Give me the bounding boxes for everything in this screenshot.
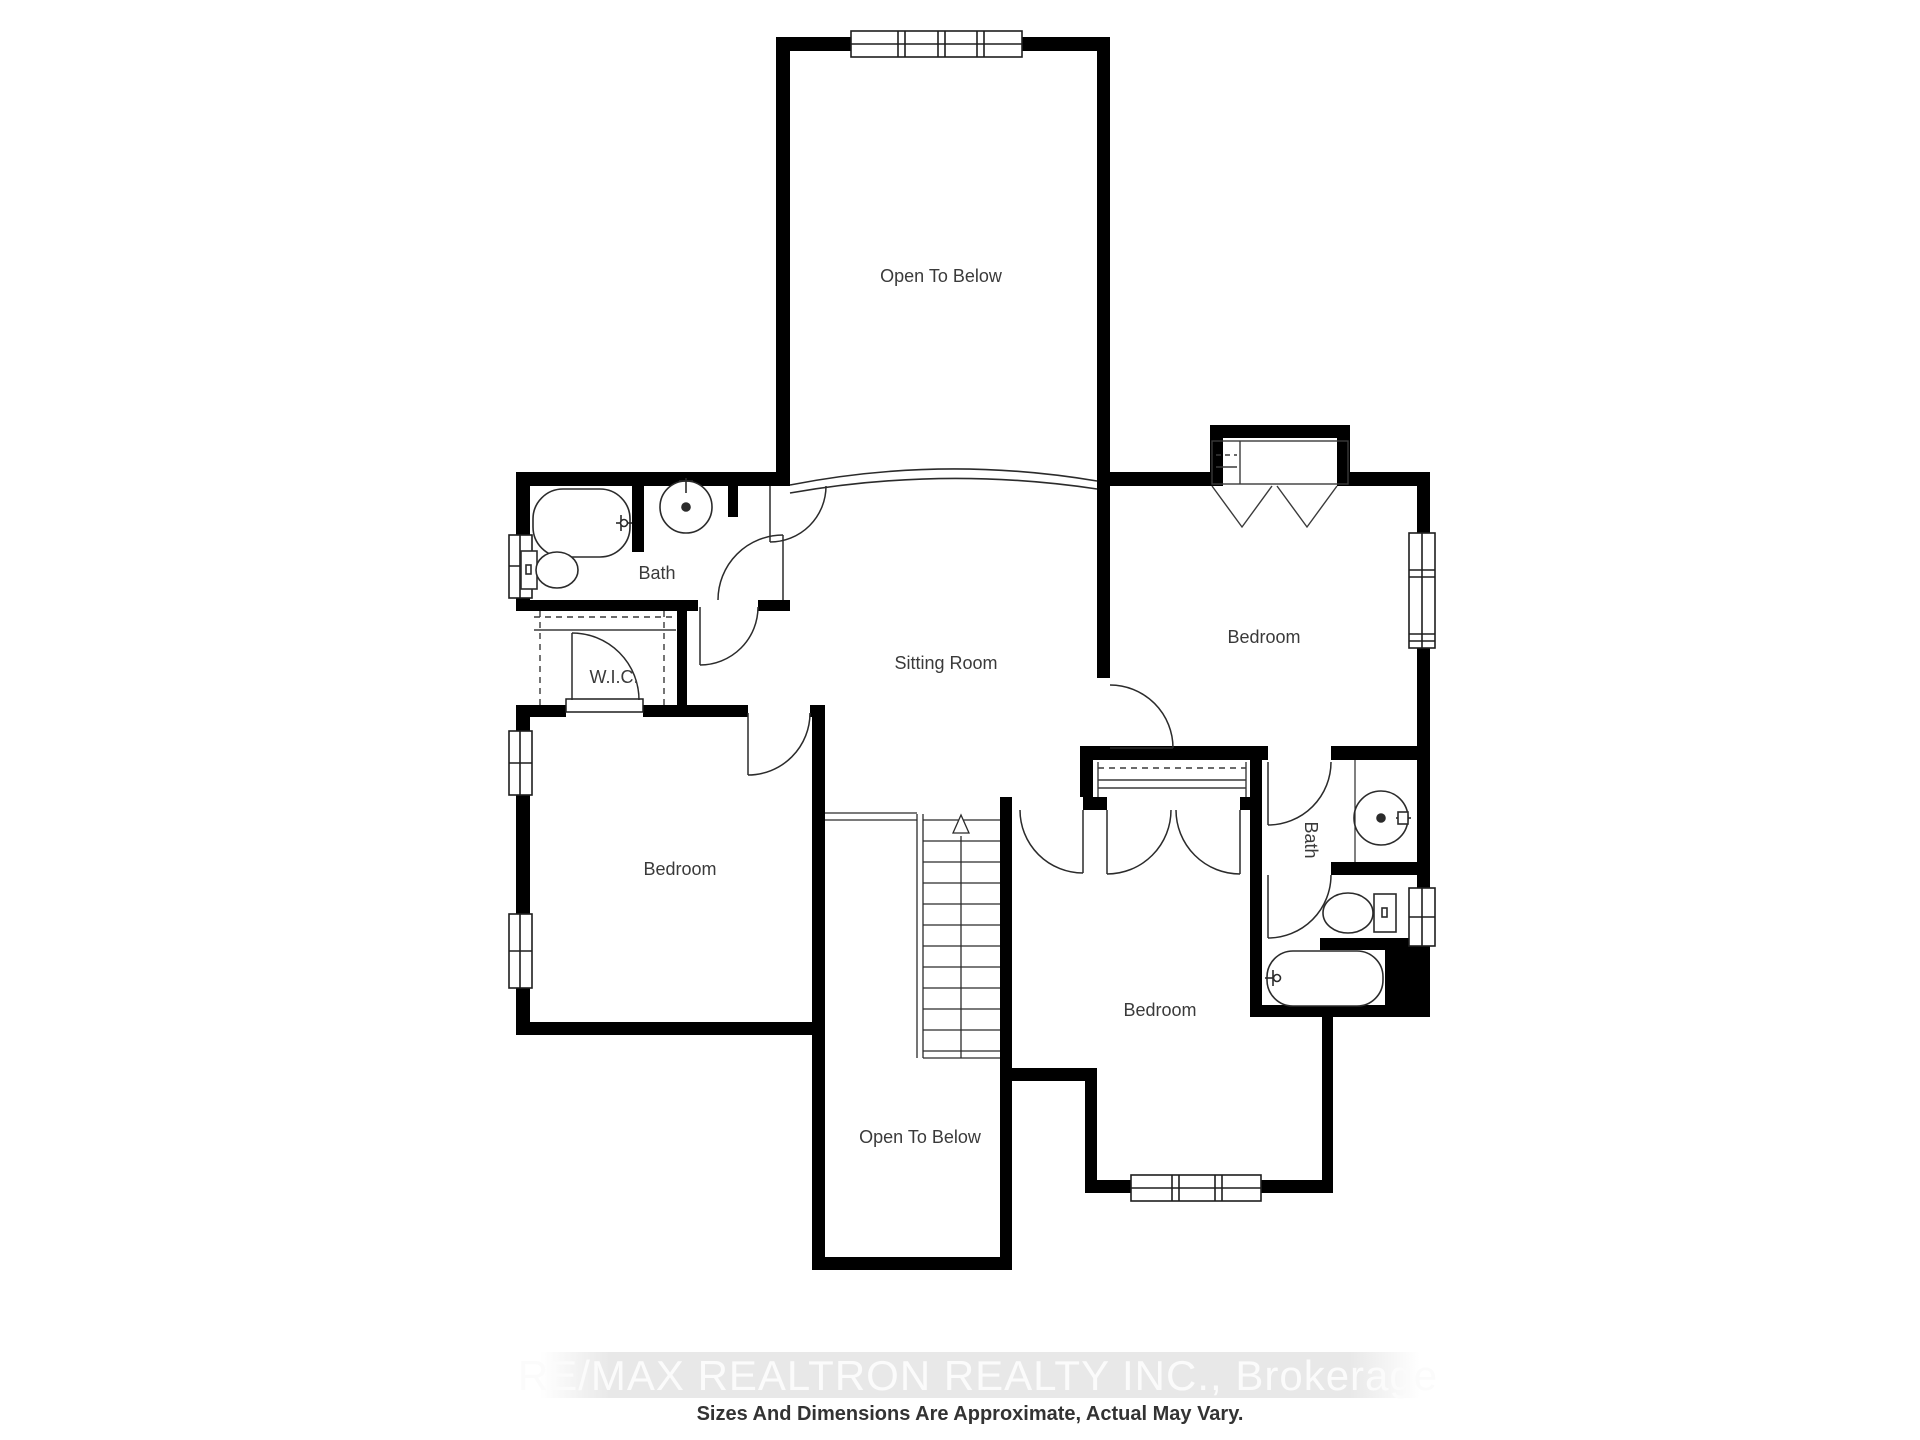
door-bedroom-lower: [1020, 810, 1083, 873]
bath-fixtures: [521, 478, 1411, 1006]
archway: [790, 469, 1097, 493]
room-label-open-to-below-upper: Open To Below: [880, 266, 1003, 286]
door-bath-lower: [1268, 762, 1331, 825]
watermark-text: RE/MAX REALTRON REALTY INC., Brokerage: [518, 1352, 1438, 1399]
toilet-lower: [1323, 893, 1396, 933]
room-label-bedroom-upper-right: Bedroom: [1227, 627, 1300, 647]
door-bedroom-left: [748, 713, 810, 775]
door-bedroom-upper-right: [1110, 685, 1173, 748]
closet-shelving: [534, 441, 1348, 797]
window-bedroom-left-1: [509, 731, 532, 795]
room-label-bath-lower: Bath: [1301, 821, 1321, 858]
window-wc: [1409, 888, 1435, 946]
closet-bedroom-lower: [1098, 762, 1246, 797]
stairs: [825, 813, 1000, 1058]
window-bedroom-lower: [1131, 1175, 1261, 1201]
footer: RE/MAX REALTRON REALTY INC., Brokerage S…: [518, 1352, 1438, 1425]
toilet-upper: [521, 551, 578, 589]
bifold-chevron-right: [1277, 486, 1337, 527]
door-wc: [1268, 875, 1331, 938]
disclaimer-text: Sizes And Dimensions Are Approximate, Ac…: [697, 1403, 1244, 1425]
floorplan-page: Open To Below Bath W.I.C. Sitting Room B…: [0, 0, 1920, 1440]
room-label-sitting-room: Sitting Room: [894, 653, 997, 673]
floorplan-drawing: Open To Below Bath W.I.C. Sitting Room B…: [0, 0, 1920, 1440]
window-bedroom-right: [1409, 533, 1435, 648]
window-top: [851, 31, 1022, 57]
bathtub-upper: [533, 489, 632, 557]
window-bedroom-left-2: [509, 914, 532, 988]
door-hall-vestibule: [718, 535, 783, 600]
door-vestibule: [700, 607, 758, 665]
bathtub-lower: [1265, 951, 1383, 1006]
double-closet-doors: [1107, 810, 1240, 874]
closet-bedroom-right: [1212, 441, 1348, 527]
bifold-chevron-left: [1212, 486, 1272, 527]
wic-shelves: [534, 611, 676, 705]
door-bath-upper-entry: [770, 486, 826, 542]
room-label-wic: W.I.C.: [590, 667, 639, 687]
room-label-bath-upper: Bath: [638, 563, 675, 583]
sink-upper: [660, 478, 712, 533]
room-label-open-to-below-lower: Open To Below: [859, 1127, 982, 1147]
room-label-bedroom-lower: Bedroom: [1123, 1000, 1196, 1020]
sink-lower: [1354, 791, 1411, 845]
railing: [825, 813, 917, 820]
stairs-up-arrow: [953, 815, 969, 833]
room-label-bedroom-left: Bedroom: [643, 859, 716, 879]
